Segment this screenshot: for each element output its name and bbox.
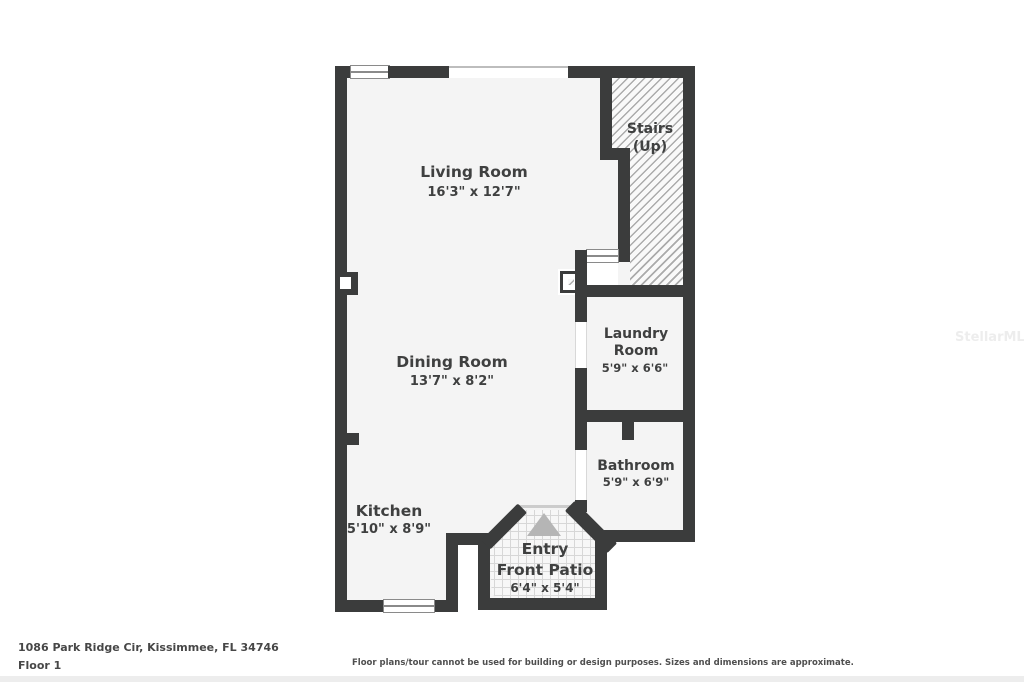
address-text: 1086 Park Ridge Cir, Kissimmee, FL 34746	[18, 641, 279, 654]
living-room-label: Living Room	[420, 163, 528, 182]
wall-segment	[335, 66, 347, 612]
living-room-dims: 16'3" x 12'7"	[427, 185, 520, 201]
window-opening	[449, 66, 568, 78]
window	[383, 599, 435, 613]
window	[350, 65, 390, 79]
dining-room-label: Dining Room	[396, 353, 507, 372]
closet-door	[586, 249, 619, 263]
wall-segment	[618, 148, 630, 262]
floor-plan-page: Living Room 16'3" x 12'7" Stairs (Up) Di…	[0, 0, 1024, 682]
bathroom-door	[575, 450, 587, 502]
entry-door-opening	[516, 505, 570, 508]
bathroom-label: Bathroom	[597, 458, 675, 475]
wall-segment	[568, 66, 695, 78]
floor-label: Floor 1	[18, 659, 61, 672]
column-hatch	[568, 279, 574, 285]
exterior-below-bathroom	[607, 542, 700, 612]
wall-segment	[575, 368, 587, 410]
entry-dims: 6'4" x 5'4"	[510, 581, 579, 595]
wall-segment	[388, 66, 449, 78]
wall-segment	[575, 500, 587, 512]
entry-arrow-icon	[527, 513, 561, 536]
front-patio-label: Front Patio	[497, 561, 594, 580]
wall-segment	[600, 66, 612, 160]
stairs-sub-label: (Up)	[633, 139, 667, 156]
stairs-label: Stairs	[627, 121, 673, 138]
wall-segment	[575, 250, 587, 322]
wall-segment	[598, 530, 695, 542]
wall-stub	[622, 422, 634, 440]
bottom-strip	[0, 676, 1024, 682]
laundry-room-label: Laundry Room	[591, 326, 681, 360]
wall-stub	[347, 433, 359, 445]
understair-closet	[587, 262, 618, 285]
kitchen-dims: 5'10" x 8'9"	[347, 522, 431, 538]
wall-segment	[500, 598, 607, 610]
entry-label: Entry	[522, 540, 569, 559]
dining-room-dims: 13'7" x 8'2"	[410, 374, 494, 390]
mls-watermark: StellarMLS	[955, 330, 1024, 345]
wall-segment	[575, 285, 695, 297]
laundry-door	[575, 322, 587, 368]
wall-segment	[575, 410, 695, 422]
wall-segment	[575, 422, 587, 450]
laundry-room-dims: 5'9" x 6'6"	[602, 362, 668, 376]
wall-segment	[683, 66, 695, 542]
bathroom-dims: 5'9" x 6'9"	[603, 476, 669, 490]
kitchen-label: Kitchen	[356, 502, 423, 521]
wall-niche	[340, 277, 351, 289]
disclaimer-text: Floor plans/tour cannot be used for buil…	[352, 658, 854, 668]
